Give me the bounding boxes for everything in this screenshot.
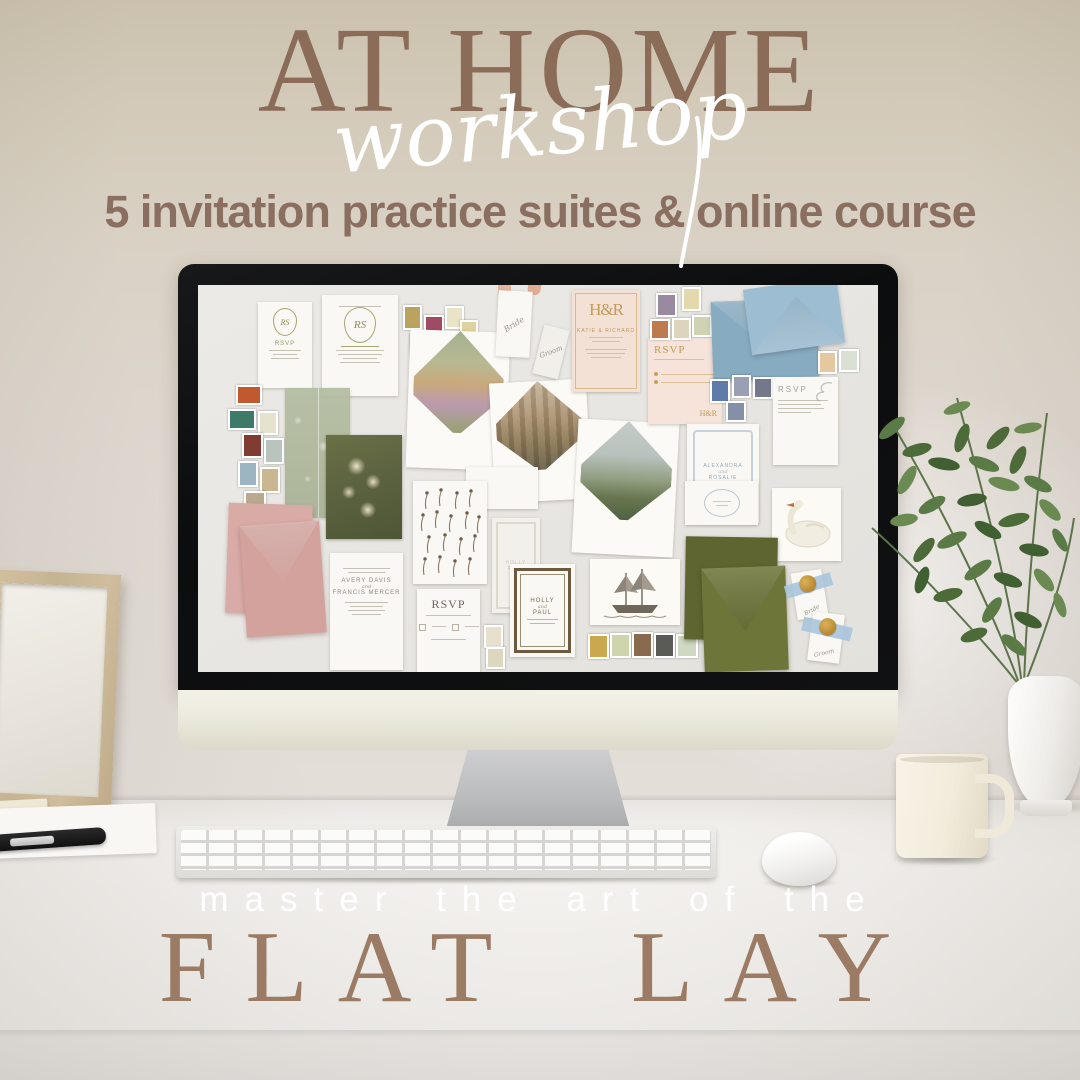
crest-monogram: RS: [273, 308, 297, 336]
stamp: [656, 293, 677, 317]
pink-envelope-front: [239, 520, 327, 637]
blue-envelope-front: [743, 285, 845, 355]
stamp: [238, 461, 258, 487]
pen-clip: [10, 836, 54, 847]
swan-illustration: [772, 488, 841, 561]
stamp: [654, 633, 675, 658]
flourish-ornament: [810, 379, 836, 403]
mug-handle: [975, 774, 1014, 838]
ship-card: [590, 559, 680, 625]
stamp: [632, 632, 653, 658]
stamp: [242, 433, 263, 458]
crowd-figures-illustration: [413, 481, 487, 584]
stamp: [753, 377, 773, 399]
stamp: [486, 647, 505, 669]
stamp: [726, 401, 746, 422]
bride-tag: Bride: [495, 290, 532, 358]
groom-tag-label: Groom: [538, 344, 563, 360]
rose-painting-card: [326, 435, 402, 539]
crest-rsvp-card: RS RSVP: [258, 302, 312, 388]
stamp: [650, 319, 670, 340]
imac-chin: [178, 690, 898, 750]
flourish-rsvp-card: RSVP: [773, 377, 838, 465]
bride-tag-label: Bride: [502, 314, 526, 333]
hr-invitation-card: H&R KATIE & RICHARD: [572, 290, 640, 392]
holly-paul-ornate-card: HOLLY and PAUL: [510, 564, 575, 657]
crest-invitation-card: RS: [322, 295, 398, 396]
stamp: [403, 305, 422, 330]
olive-envelope-front: [701, 566, 789, 672]
footer-title: FLAT LAY: [0, 914, 1080, 1021]
crest-rsvp-label: RSVP: [258, 341, 312, 347]
keyboard-keys: [181, 830, 711, 870]
stamp: [228, 409, 256, 430]
stamp: [710, 379, 730, 403]
stamp: [258, 411, 278, 435]
stamp: [264, 438, 284, 464]
imac-screen-moodboard: RS RSVP RS: [198, 285, 878, 672]
stamp: [260, 467, 280, 493]
promo-graphic: AT HOME workshop 5 invitation practice s…: [0, 0, 1080, 1080]
stamp: [839, 349, 859, 372]
seal-tag-groom: Groom: [807, 611, 845, 664]
stamp: [732, 375, 751, 398]
stamp: [682, 287, 701, 311]
plant-foliage: [862, 368, 1080, 703]
invite-crest-monogram: RS: [344, 307, 376, 343]
serif-rsvp-label: RSVP: [417, 597, 480, 612]
mug: [896, 754, 988, 858]
paul-name: PAUL: [533, 610, 552, 616]
stamp: [484, 625, 503, 648]
serif-rsvp-card: RSVP: [417, 589, 480, 672]
ship-illustration: [590, 559, 680, 625]
rosalie-name: ROSALIE: [709, 475, 738, 481]
francis-name: FRANCIS MERCER: [330, 590, 403, 596]
stamp: [672, 318, 691, 340]
seal-tag-groom-label: Groom: [808, 646, 841, 660]
keyboard: [176, 826, 716, 878]
avery-invitation-card: AVERY DAVIS and FRANCIS MERCER: [330, 553, 403, 670]
envelope-landscape-liner: [572, 418, 680, 557]
stamp: [610, 633, 631, 658]
stamp: [692, 315, 712, 337]
picture-frame: [0, 569, 121, 811]
crowd-figures-card: [413, 481, 487, 584]
picture-frame-mat: [0, 583, 108, 797]
stamp: [588, 634, 609, 659]
wreath-card: [685, 481, 758, 525]
groom-tag: Groom: [532, 325, 569, 380]
stamp: [818, 351, 837, 374]
blush-rsvp-monogram: H&R: [700, 409, 717, 418]
swan-card: [772, 488, 841, 561]
blush-rsvp-label: RSVP: [654, 344, 716, 356]
mouse: [762, 832, 836, 886]
stamp: [236, 385, 262, 405]
